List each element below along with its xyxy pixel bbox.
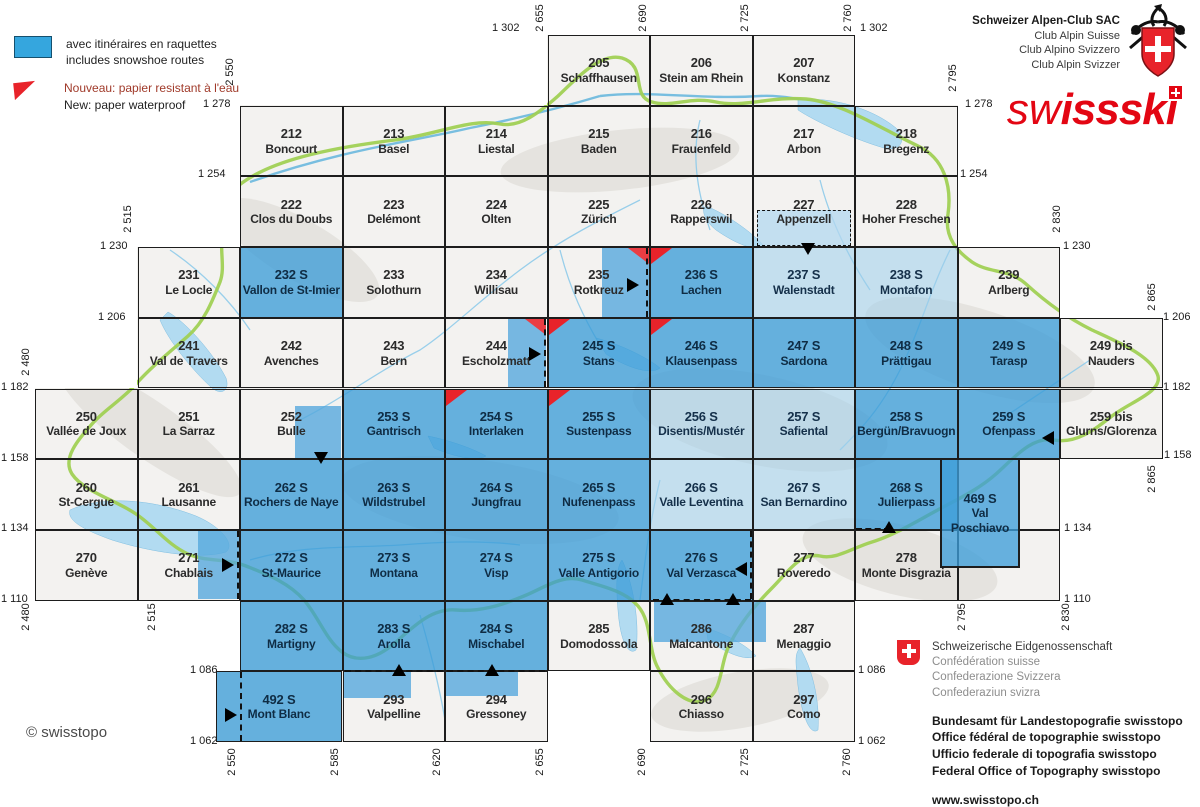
sheet-name: St-Cergue [58, 495, 114, 509]
sheet-number: 469 S [964, 491, 997, 507]
sheet-name: Hoher Freschen [862, 212, 951, 226]
sheet-number: 274 S [480, 550, 513, 566]
sheet-number: 267 S [787, 480, 820, 496]
sheet-name: Glurns/Glorenza [1066, 424, 1156, 438]
sheet-number: 276 S [685, 550, 718, 566]
map-sheet-248-S: 248 SPrättigau [855, 318, 958, 389]
office-en: Federal Office of Topography swisstopo [932, 763, 1183, 780]
grid-coordinate-label: 2 865 [1146, 280, 1158, 314]
adjoining-sheet-arrow-icon [801, 243, 815, 255]
sheet-number: 254 S [480, 409, 513, 425]
sheet-number: 275 S [582, 550, 615, 566]
sheet-number: 238 S [890, 267, 923, 283]
grid-coordinate-label: 1 158 [1164, 449, 1192, 461]
overlap-dashed-line [240, 672, 242, 741]
map-sheet-224: 224Olten [445, 176, 548, 247]
sheet-name: Zürich [581, 212, 616, 226]
sheet-name: Konstanz [778, 71, 830, 85]
map-sheet-270: 270Genève [35, 530, 138, 601]
grid-coordinate-label: 2 760 [842, 1, 854, 35]
sheet-name: Martigny [267, 637, 315, 651]
sheet-number: 225 [588, 197, 609, 213]
sheet-name: Disentis/Mustér [658, 424, 744, 438]
map-sheet-297: 297Como [753, 671, 856, 742]
sheet-number: 228 [896, 197, 917, 213]
sheet-number: 213 [383, 126, 404, 142]
map-sheet-294: 294Gressoney [445, 671, 548, 742]
map-sheet-226: 226Rapperswil [650, 176, 753, 247]
sheet-name: Nufenenpass [562, 495, 635, 509]
sheet-number: 246 S [685, 338, 718, 354]
sheet-number: 251 [178, 409, 199, 425]
grid-coordinate-label: 2 585 [329, 745, 341, 779]
grid-coordinate-label: 2 830 [1060, 600, 1072, 634]
map-sheet-257-S: 257 SSafiental [753, 389, 856, 460]
grid-coordinate-label: 1 158 [1, 452, 29, 464]
grid-coordinate-label: 2 515 [146, 600, 158, 634]
sheet-number: 287 [793, 621, 814, 637]
grid-coordinate-label: 2 795 [956, 600, 968, 634]
sheet-number: 248 S [890, 338, 923, 354]
sheet-number: 262 S [275, 480, 308, 496]
sheet-name: Avenches [264, 354, 319, 368]
adjoining-sheet-arrow-icon [660, 593, 674, 605]
map-sheet-263-S: 263 SWildstrubel [343, 459, 446, 530]
sheet-name: Rochers de Naye [244, 495, 338, 509]
sheet-name: Stein am Rhein [659, 71, 743, 85]
sheet-name: Visp [484, 566, 508, 580]
map-sheet-237-S: 237 SWalenstadt [753, 247, 856, 318]
adjoining-sheet-arrow-icon [529, 347, 541, 361]
copyright-notice: © swisstopo [26, 724, 107, 741]
sheet-name: Interlaken [469, 424, 524, 438]
sac-line-it: Club Alpino Svizzero [972, 43, 1120, 57]
adjoining-sheet-arrow-icon [882, 521, 896, 533]
grid-coordinate-label: 1 254 [960, 168, 988, 180]
swissski-logo: swissski [1007, 88, 1182, 132]
sheet-number: 282 S [275, 621, 308, 637]
sheet-name: Le Locle [165, 283, 212, 297]
map-sheet-233: 233Solothurn [343, 247, 446, 318]
map-sheet-218: 218Bregenz [855, 106, 958, 177]
legend-snowshoe-fr: avec itinéraires en raquettes [66, 36, 217, 52]
sheet-name: Gressoney [466, 707, 526, 721]
overlap-dashed-line [646, 248, 648, 317]
sheet-name: Montana [370, 566, 418, 580]
map-sheet-212: 212Boncourt [240, 106, 343, 177]
sheet-name: Malcantone [669, 637, 733, 651]
map-sheet-247-S: 247 SSardona [753, 318, 856, 389]
map-sheet-223: 223Delémont [343, 176, 446, 247]
map-sheet-234: 234Willisau [445, 247, 548, 318]
map-sheet-232-S: 232 SVallon de St-Imier [240, 247, 343, 318]
sheet-name: Basel [378, 142, 409, 156]
map-sheet-215: 215Baden [548, 106, 651, 177]
sheet-name: Safiental [780, 424, 828, 438]
grid-coordinate-label: 1 086 [858, 664, 886, 676]
adjoining-sheet-arrow-icon [735, 562, 747, 576]
map-sheet-249-S: 249 STarasp [958, 318, 1061, 389]
sheet-number: 217 [793, 126, 814, 142]
sheet-number: 241 [178, 338, 199, 354]
sheet-name: Roveredo [777, 566, 831, 580]
map-sheet-260: 260St-Cergue [35, 459, 138, 530]
map-sheet-214: 214Liestal [445, 106, 548, 177]
map-sheet-242: 242Avenches [240, 318, 343, 389]
map-sheet-262-S: 262 SRochers de Naye [240, 459, 343, 530]
confederation-it: Confederazione Svizzera [932, 670, 1183, 685]
map-sheet-238-S: 238 SMontafon [855, 247, 958, 318]
grid-coordinate-label: 2 550 [226, 745, 238, 779]
grid-coordinate-label: 1 182 [1, 381, 29, 393]
map-sheet-258-S: 258 SBergün/Bravuogn [855, 389, 958, 460]
grid-coordinate-label: 1 062 [190, 735, 218, 747]
map-sheet-282-S: 282 SMartigny [240, 601, 343, 672]
map-sheet-264-S: 264 SJungfrau [445, 459, 548, 530]
sheet-name: Arolla [377, 637, 410, 651]
map-sheet-213: 213Basel [343, 106, 446, 177]
map-sheet-267-S: 267 SSan Bernardino [753, 459, 856, 530]
grid-coordinate-label: 2 480 [20, 345, 32, 379]
sheet-number: 218 [896, 126, 917, 142]
sheet-number: 293 [383, 692, 404, 708]
legend-waterproof-fr: Nouveau: papier resistant à l'eau [64, 80, 239, 96]
grid-coordinate-label: 1 230 [100, 240, 128, 252]
adjoining-sheet-arrow-icon [222, 558, 234, 572]
overlap-dashed-outline [757, 210, 851, 246]
map-sheet-273-S: 273 SMontana [343, 530, 446, 601]
sheet-name: Mischabel [468, 637, 524, 651]
sheet-number: 261 [178, 480, 199, 496]
map-sheet-285: 285Domodossola [548, 601, 651, 672]
sheet-number: 255 S [582, 409, 615, 425]
sheet-name: Sardona [780, 354, 827, 368]
sheet-number: 284 S [480, 621, 513, 637]
swiss-federal-shield-icon [897, 640, 920, 665]
sheet-number: 250 [76, 409, 97, 425]
map-sheet-243: 243Bern [343, 318, 446, 389]
sheet-name: Willisau [474, 283, 518, 297]
sheet-number: 206 [691, 55, 712, 71]
sheet-name: Chablais [165, 566, 213, 580]
swisstopo-publisher-block: Schweizerische Eidgenossenschaft Confédé… [897, 640, 1183, 807]
grid-coordinate-label: 2 515 [122, 202, 134, 236]
grid-coordinate-label: 2 655 [534, 1, 546, 35]
sheet-number: 258 S [890, 409, 923, 425]
sheet-name: Solothurn [366, 283, 421, 297]
sheet-name: Jungfrau [471, 495, 521, 509]
map-sheet-231: 231Le Locle [138, 247, 241, 318]
map-sheet-250: 250Vallée de Joux [35, 389, 138, 460]
map-sheet-277: 277Roveredo [753, 530, 856, 601]
map-sheet-225: 225Zürich [548, 176, 651, 247]
sheet-number: 271 [178, 550, 199, 566]
sheet-name: Stans [583, 354, 615, 368]
sheet-number: 283 S [377, 621, 410, 637]
adjoining-sheet-arrow-icon [225, 708, 237, 722]
adjoining-sheet-arrow-icon [726, 593, 740, 605]
office-it: Ufficio federale di topografia swisstopo [932, 746, 1183, 763]
map-sheet-255-S: 255 SSustenpass [548, 389, 651, 460]
sheet-name: Mont Blanc [248, 707, 311, 721]
map-sheet-228: 228Hoher Freschen [855, 176, 958, 247]
overlap-dashed-line [750, 531, 752, 599]
grid-coordinate-label: 2 865 [1146, 462, 1158, 496]
sheet-name: Olten [481, 212, 511, 226]
grid-coordinate-label: 2 655 [534, 745, 546, 779]
sheet-number: 226 [691, 197, 712, 213]
sheet-name: Val de Travers [150, 354, 228, 368]
waterproof-legend-icon [13, 81, 37, 100]
sheet-name: Lausanne [162, 495, 216, 509]
grid-coordinate-label: 1 230 [1063, 240, 1091, 252]
grid-coordinate-label: 2 725 [739, 745, 751, 779]
sheet-name: Boncourt [265, 142, 317, 156]
sheet-number: 249 S [992, 338, 1025, 354]
grid-coordinate-label: 1 302 [492, 22, 520, 34]
adjoining-sheet-arrow-icon [627, 278, 639, 292]
grid-coordinate-label: 1 182 [1163, 381, 1191, 393]
legend-waterproof-en: New: paper waterproof [64, 97, 239, 113]
map-sheet-261: 261Lausanne [138, 459, 241, 530]
sheet-number: 257 S [787, 409, 820, 425]
map-sheet-241: 241Val de Travers [138, 318, 241, 389]
sheet-name: Rapperswil [670, 212, 732, 226]
sheet-name: Vallon de St-Imier [243, 283, 340, 297]
swisstopo-url: www.swisstopo.ch [932, 793, 1183, 807]
sac-crest-icon [1124, 4, 1192, 84]
sheet-name: Arlberg [988, 283, 1029, 297]
sheet-name: Valle Leventina [659, 495, 743, 509]
overlap-dashed-line [237, 531, 239, 599]
sheet-number: 253 S [377, 409, 410, 425]
sheet-number: 247 S [787, 338, 820, 354]
sheet-name: Bregenz [883, 142, 929, 156]
grid-coordinate-label: 1 134 [1064, 522, 1092, 534]
grid-coordinate-label: 1 254 [198, 168, 226, 180]
sheet-number: 492 S [263, 692, 296, 708]
sheet-number: 237 S [787, 267, 820, 283]
sheet-number: 222 [281, 197, 302, 213]
grid-coordinate-label: 2 690 [637, 1, 649, 35]
sheet-name: Frauenfeld [672, 142, 731, 156]
sheet-number: 277 [793, 550, 814, 566]
sheet-name: Tarasp [990, 354, 1027, 368]
sheet-number: 224 [486, 197, 507, 213]
sheet-number: 263 S [377, 480, 410, 496]
snowshoe-legend-swatch [14, 36, 52, 58]
grid-coordinate-label: 2 830 [1051, 202, 1063, 236]
sheet-name: Rotkreuz [574, 283, 624, 297]
map-sheet-253-S: 253 SGantrisch [343, 389, 446, 460]
sheet-name: Delémont [367, 212, 420, 226]
waterproof-corner-icon [651, 319, 672, 335]
sheet-name: Bergün/Bravuogn [857, 424, 955, 438]
sheet-number: 294 [486, 692, 507, 708]
sheet-name: Ofenpass [982, 424, 1035, 438]
sheet-number: 268 S [890, 480, 923, 496]
map-sheet-216: 216Frauenfeld [650, 106, 753, 177]
sheet-number: 259 bis [1090, 409, 1133, 425]
sheet-number: 296 [691, 692, 712, 708]
grid-coordinate-label: 2 760 [841, 745, 853, 779]
map-sheet-252: 252Bulle [240, 389, 343, 460]
sheet-name: Escholzmatt [462, 354, 530, 368]
sheet-name: Nauders [1088, 354, 1135, 368]
sheet-name: La Sarraz [163, 424, 215, 438]
sheet-number: 233 [383, 267, 404, 283]
sheet-number: 270 [76, 550, 97, 566]
sheet-name: Schaffhausen [561, 71, 637, 85]
sheet-name: Menaggio [777, 637, 831, 651]
sheet-name: Clos du Doubs [250, 212, 332, 226]
map-sheet-246-S: 246 SKlausenpass [650, 318, 753, 389]
sheet-name: Prättigau [881, 354, 931, 368]
sheet-number: 235 [588, 267, 609, 283]
sheet-number: 223 [383, 197, 404, 213]
sheet-name: Sustenpass [566, 424, 631, 438]
waterproof-corner-icon [549, 390, 570, 406]
map-sheet-274-S: 274 SVisp [445, 530, 548, 601]
sheet-number: 256 S [685, 409, 718, 425]
swissski-logo-light: sw [1007, 85, 1061, 134]
overlap-dashed-line [544, 319, 546, 387]
sheet-name: San Bernardino [760, 495, 847, 509]
map-sheet-254-S: 254 SInterlaken [445, 389, 548, 460]
sheet-number: 297 [793, 692, 814, 708]
adjoining-sheet-arrow-icon [392, 664, 406, 676]
sheet-name: Como [787, 707, 820, 721]
sheet-number: 286 [691, 621, 712, 637]
sheet-number: 265 S [582, 480, 615, 496]
sac-title: Schweizer Alpen-Club SAC [972, 14, 1120, 29]
sheet-number: 273 S [377, 550, 410, 566]
map-sheet-287: 287Menaggio [753, 601, 856, 672]
map-sheet-239: 239Arlberg [958, 247, 1061, 318]
sheet-number: 243 [383, 338, 404, 354]
swiss-cross-icon [1169, 86, 1182, 99]
map-sheet-265-S: 265 SNufenenpass [548, 459, 651, 530]
grid-coordinate-label: 1 302 [860, 22, 888, 34]
sheet-number: 264 S [480, 480, 513, 496]
sheet-name: Liestal [478, 142, 515, 156]
legend: avec itinéraires en raquettes includes s… [14, 36, 239, 125]
sheet-name: Gantrisch [367, 424, 421, 438]
sheet-name: Walenstadt [773, 283, 835, 297]
map-sheet-206: 206Stein am Rhein [650, 35, 753, 106]
office-fr: Office fédéral de topographie swisstopo [932, 729, 1183, 746]
sac-line-fr: Club Alpin Suisse [972, 29, 1120, 43]
sheet-name: Chiasso [679, 707, 724, 721]
legend-snowshoe-en: includes snowshoe routes [66, 52, 217, 68]
grid-coordinate-label: 2 690 [636, 745, 648, 779]
sheet-number: 216 [691, 126, 712, 142]
sac-club-block: Schweizer Alpen-Club SAC Club Alpin Suis… [972, 14, 1120, 72]
grid-coordinate-label: 1 062 [858, 735, 886, 747]
map-sheet-469-S: 469 SVal Poschiavo [940, 458, 1020, 568]
map-sheet-256-S: 256 SDisentis/Mustér [650, 389, 753, 460]
sheet-number: 212 [281, 126, 302, 142]
map-sheet-236-S: 236 SLachen [650, 247, 753, 318]
grid-coordinate-label: 2 795 [947, 61, 959, 95]
sheet-name: Monte Disgrazia [862, 566, 951, 580]
sheet-number: 260 [76, 480, 97, 496]
sheet-number: 249 bis [1090, 338, 1133, 354]
sheet-name: Wildstrubel [362, 495, 425, 509]
map-sheet-266-S: 266 SValle Leventina [650, 459, 753, 530]
grid-coordinate-label: 1 134 [1, 522, 29, 534]
overlap-dashed-line [345, 670, 545, 672]
grid-coordinate-label: 1 206 [1163, 311, 1191, 323]
sheet-name: Valle Antigorio [558, 566, 639, 580]
sheet-number: 244 [486, 338, 507, 354]
sheet-number: 236 S [685, 267, 718, 283]
sheet-name: Montafon [880, 283, 932, 297]
sheet-number: 245 S [582, 338, 615, 354]
waterproof-corner-icon [651, 248, 672, 264]
grid-coordinate-label: 1 278 [965, 98, 993, 110]
waterproof-corner-icon [446, 390, 467, 406]
adjoining-sheet-arrow-icon [485, 664, 499, 676]
confederation-fr: Confédération suisse [932, 655, 1183, 670]
map-sheet-283-S: 283 SArolla [343, 601, 446, 672]
sheet-number: 252 [281, 409, 302, 425]
sheet-number: 259 S [992, 409, 1025, 425]
sheet-number: 232 S [275, 267, 308, 283]
sheet-name: Klausenpass [665, 354, 737, 368]
map-sheet-245-S: 245 SStans [548, 318, 651, 389]
confederation-rm: Confederaziun svizra [932, 686, 1183, 701]
sheet-number: 214 [486, 126, 507, 142]
sheet-name: St-Maurice [262, 566, 321, 580]
map-sheet-205: 205Schaffhausen [548, 35, 651, 106]
sheet-name: Julierpass [878, 495, 935, 509]
sheet-number: 242 [281, 338, 302, 354]
sheet-name: Arbon [787, 142, 821, 156]
sheet-name: Bulle [277, 424, 305, 438]
sheet-number: 205 [588, 55, 609, 71]
map-sheet-222: 222Clos du Doubs [240, 176, 343, 247]
grid-coordinate-label: 2 620 [431, 745, 443, 779]
sheet-number: 272 S [275, 550, 308, 566]
map-sheet-259-S: 259 SOfenpass [958, 389, 1061, 460]
map-sheet-249-bis: 249 bisNauders [1060, 318, 1163, 389]
sheet-name: Lachen [681, 283, 722, 297]
sheet-name: Genève [65, 566, 107, 580]
grid-coordinate-label: 1 086 [190, 664, 218, 676]
confederation-de: Schweizerische Eidgenossenschaft [932, 640, 1183, 655]
adjoining-sheet-arrow-icon [1042, 431, 1054, 445]
grid-coordinate-label: 2 480 [20, 600, 32, 634]
map-sheet-492-S: 492 SMont Blanc [216, 671, 342, 742]
grid-coordinate-label: 1 206 [98, 311, 126, 323]
map-sheet-217: 217Arbon [753, 106, 856, 177]
adjoining-sheet-arrow-icon [314, 452, 328, 464]
map-sheet-293: 293Valpelline [343, 671, 446, 742]
map-sheet-284-S: 284 SMischabel [445, 601, 548, 672]
sheet-name: Valpelline [367, 707, 420, 721]
grid-coordinate-label: 2 725 [739, 1, 751, 35]
map-sheet-296: 296Chiasso [650, 671, 753, 742]
map-sheet-272-S: 272 SSt-Maurice [240, 530, 343, 601]
sheet-name: Val Verzasca [666, 566, 736, 580]
sheet-name: Bern [380, 354, 407, 368]
map-sheet-275-S: 275 SValle Antigorio [548, 530, 651, 601]
map-sheet-286: 286Malcantone [650, 601, 753, 672]
sheet-number: 239 [998, 267, 1019, 283]
sheet-name: Baden [581, 142, 617, 156]
sheet-number: 266 S [685, 480, 718, 496]
